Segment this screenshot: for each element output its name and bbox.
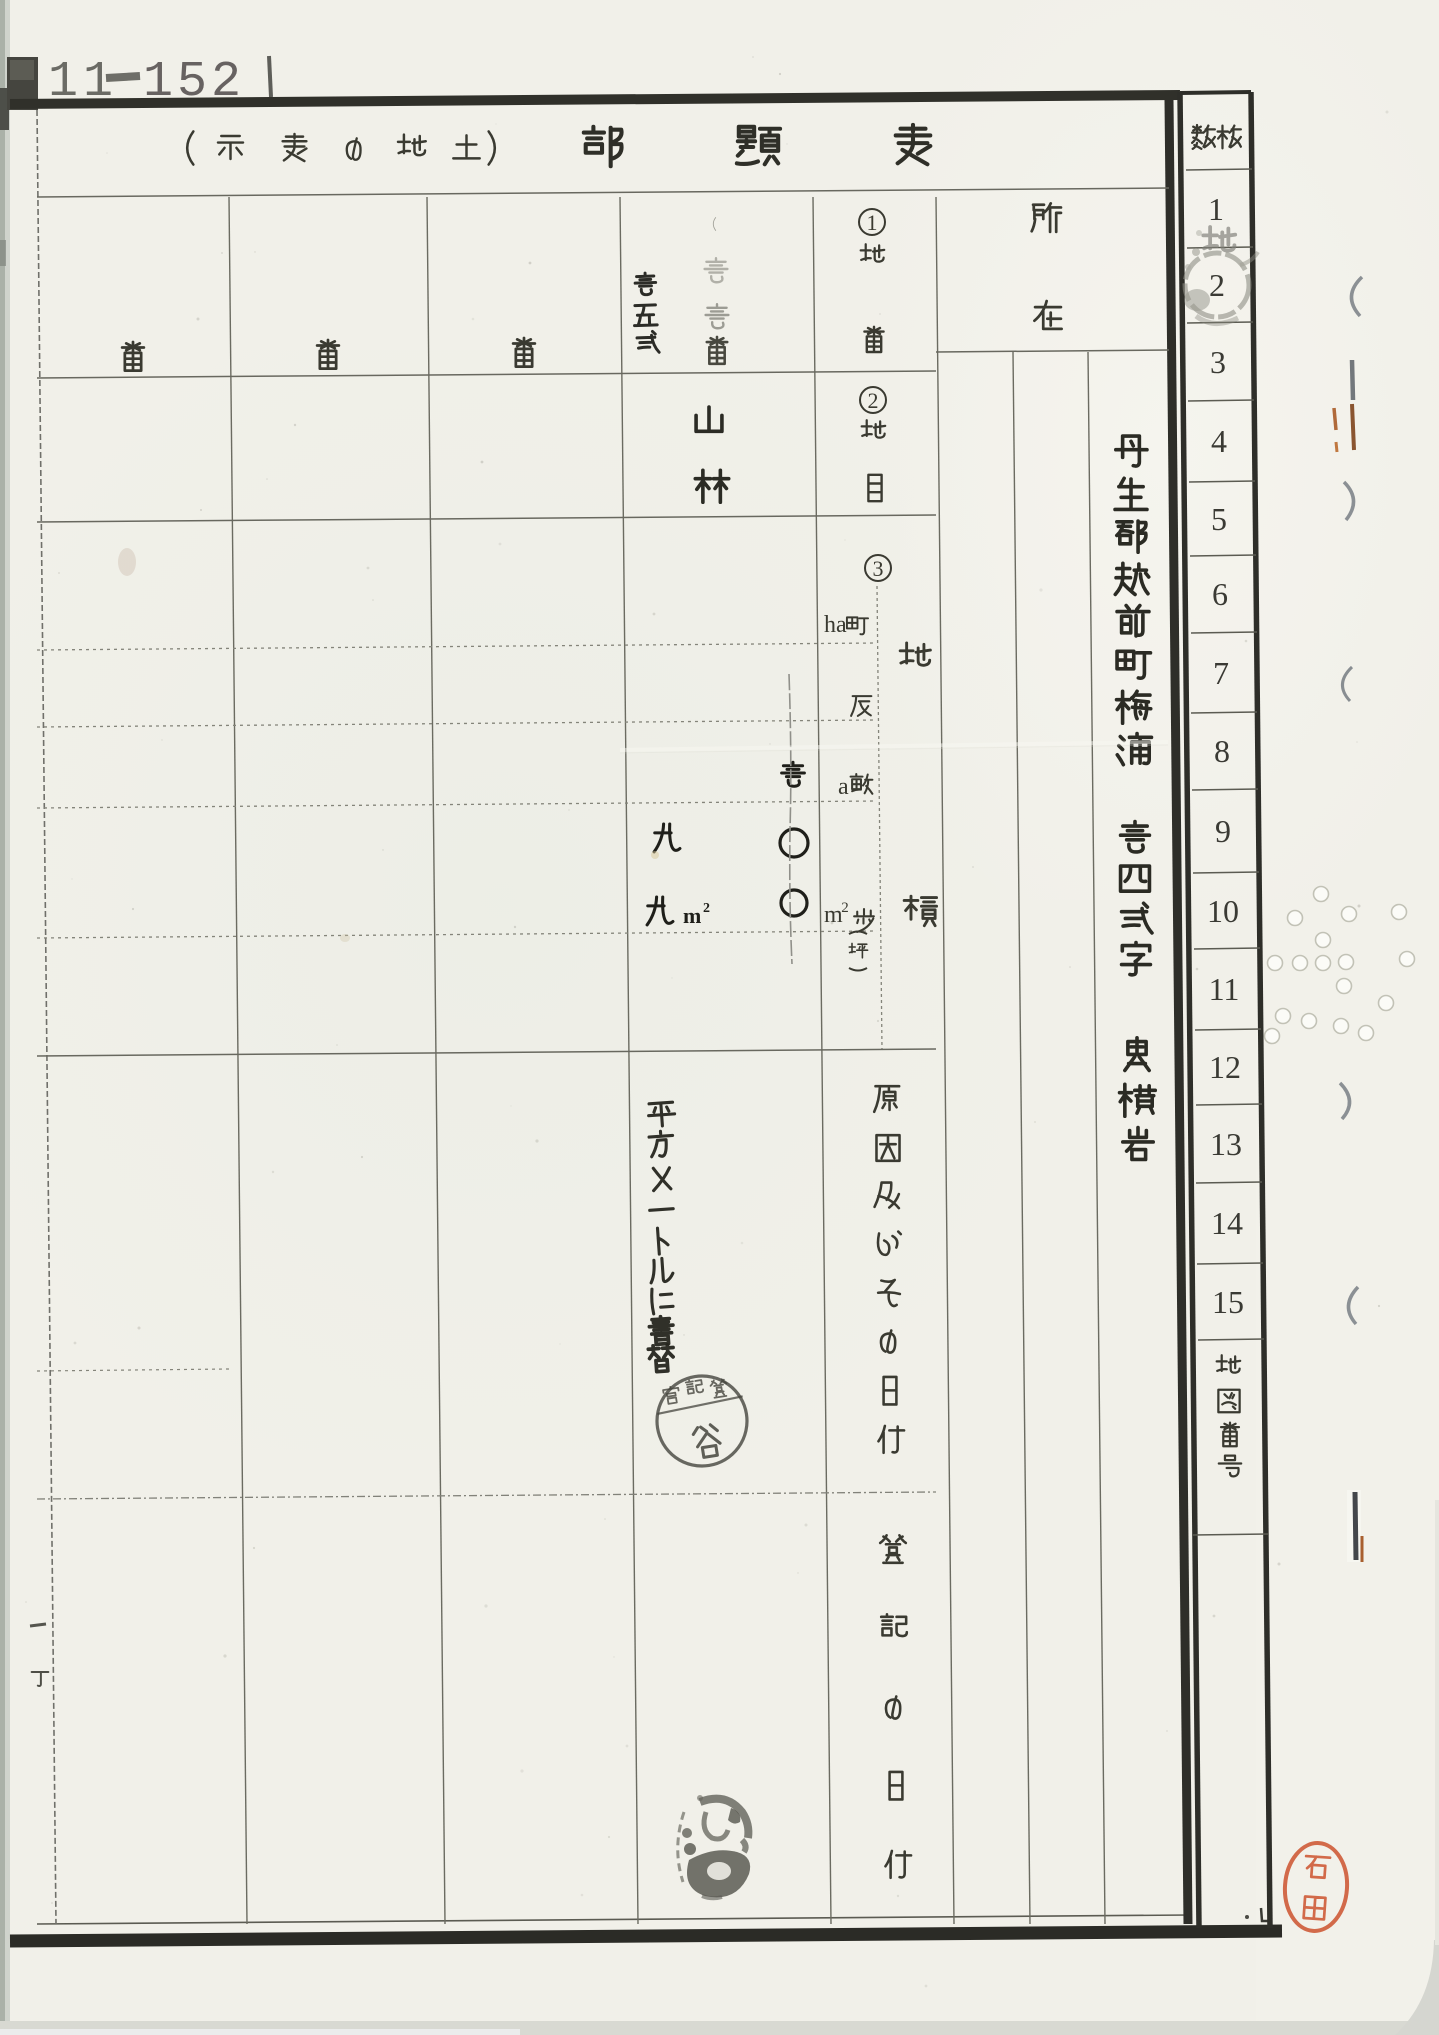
svg-text:1: 1 <box>867 210 878 235</box>
svg-text:6: 6 <box>1212 576 1228 612</box>
svg-text:1: 1 <box>1208 191 1224 227</box>
svg-text:10: 10 <box>1207 893 1239 929</box>
svg-text:14: 14 <box>1211 1205 1243 1241</box>
svg-text:m: m <box>824 902 843 928</box>
svg-text:11: 11 <box>1209 971 1240 1007</box>
svg-text:2: 2 <box>868 388 879 413</box>
svg-text:12: 12 <box>1209 1049 1241 1085</box>
svg-text:5: 5 <box>1211 501 1227 537</box>
svg-text:ha: ha <box>824 612 847 638</box>
svg-text:13: 13 <box>1210 1126 1242 1162</box>
svg-text:15: 15 <box>1212 1284 1244 1320</box>
svg-text:3: 3 <box>1210 344 1226 380</box>
svg-text:4: 4 <box>1211 423 1227 459</box>
svg-text:a: a <box>838 774 849 800</box>
svg-text:3: 3 <box>873 556 884 581</box>
svg-text:2: 2 <box>703 901 710 916</box>
svg-text:m: m <box>683 903 701 928</box>
svg-text:7: 7 <box>1213 655 1229 691</box>
svg-text:8: 8 <box>1214 733 1230 769</box>
svg-text:2: 2 <box>1209 267 1225 303</box>
svg-text:2: 2 <box>841 900 849 916</box>
svg-text:9: 9 <box>1215 813 1231 849</box>
